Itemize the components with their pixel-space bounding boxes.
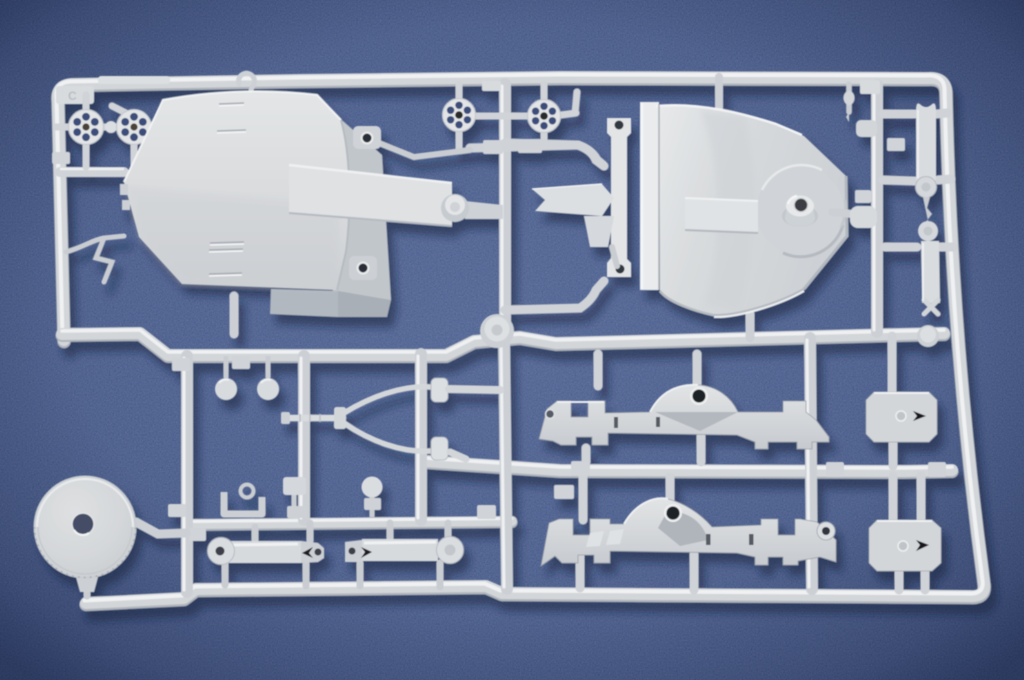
- svg-text:C: C: [68, 89, 77, 103]
